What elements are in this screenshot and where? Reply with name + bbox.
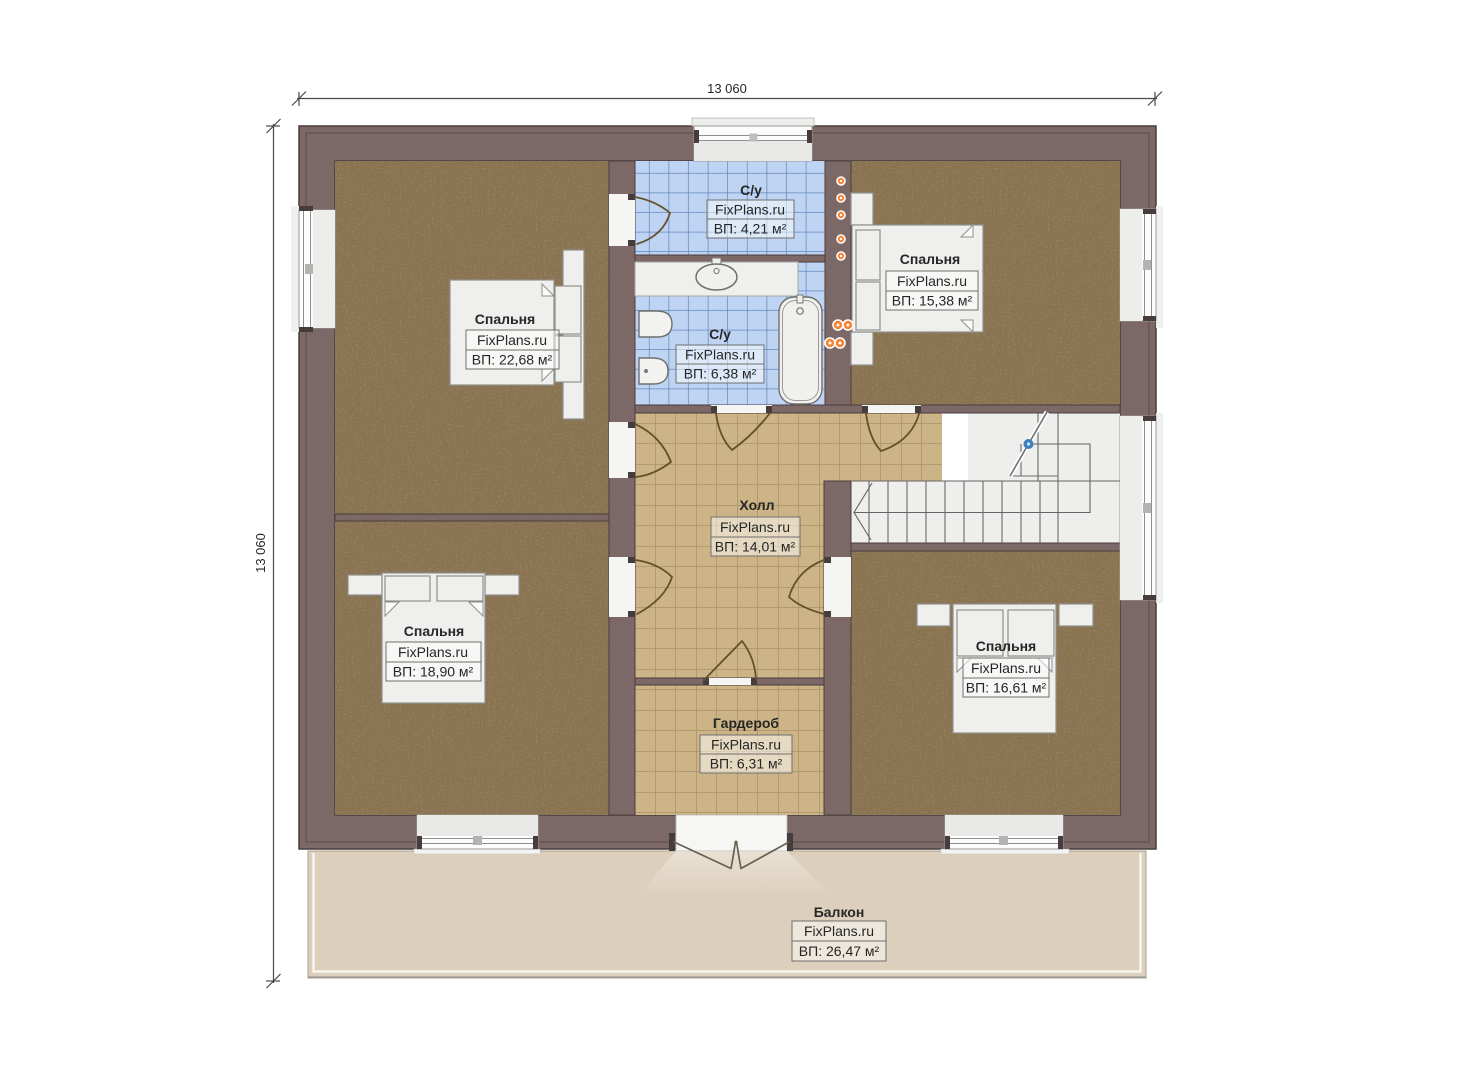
svg-text:ВП: 6,31 м²: ВП: 6,31 м² xyxy=(710,756,783,772)
svg-text:13 060: 13 060 xyxy=(253,533,268,573)
svg-text:FixPlans.ru: FixPlans.ru xyxy=(711,737,781,753)
svg-text:FixPlans.ru: FixPlans.ru xyxy=(477,332,547,348)
svg-text:FixPlans.ru: FixPlans.ru xyxy=(685,347,755,363)
svg-text:ВП: 15,38 м²: ВП: 15,38 м² xyxy=(892,293,973,309)
svg-text:Спальня: Спальня xyxy=(404,623,464,639)
svg-text:Гардероб: Гардероб xyxy=(713,715,780,731)
svg-text:ВП: 22,68 м²: ВП: 22,68 м² xyxy=(472,352,553,368)
svg-text:FixPlans.ru: FixPlans.ru xyxy=(897,273,967,289)
svg-text:С/у: С/у xyxy=(709,326,731,342)
svg-text:ВП: 26,47 м²: ВП: 26,47 м² xyxy=(799,943,880,959)
svg-text:13 060: 13 060 xyxy=(707,81,747,96)
svg-text:Балкон: Балкон xyxy=(814,904,865,920)
svg-text:FixPlans.ru: FixPlans.ru xyxy=(715,202,785,218)
svg-text:ВП: 18,90 м²: ВП: 18,90 м² xyxy=(393,664,474,680)
svg-text:Спальня: Спальня xyxy=(976,638,1036,654)
svg-text:FixPlans.ru: FixPlans.ru xyxy=(971,660,1041,676)
svg-text:Холл: Холл xyxy=(739,497,774,513)
svg-text:FixPlans.ru: FixPlans.ru xyxy=(398,644,468,660)
svg-text:FixPlans.ru: FixPlans.ru xyxy=(804,923,874,939)
svg-text:ВП: 16,61 м²: ВП: 16,61 м² xyxy=(966,680,1047,696)
svg-text:С/у: С/у xyxy=(740,182,762,198)
svg-text:FixPlans.ru: FixPlans.ru xyxy=(720,519,790,535)
svg-text:Спальня: Спальня xyxy=(475,311,535,327)
svg-text:ВП: 14,01 м²: ВП: 14,01 м² xyxy=(715,539,796,555)
svg-text:ВП: 6,38 м²: ВП: 6,38 м² xyxy=(684,366,757,382)
svg-text:Спальня: Спальня xyxy=(900,251,960,267)
svg-text:ВП: 4,21 м²: ВП: 4,21 м² xyxy=(714,221,787,237)
